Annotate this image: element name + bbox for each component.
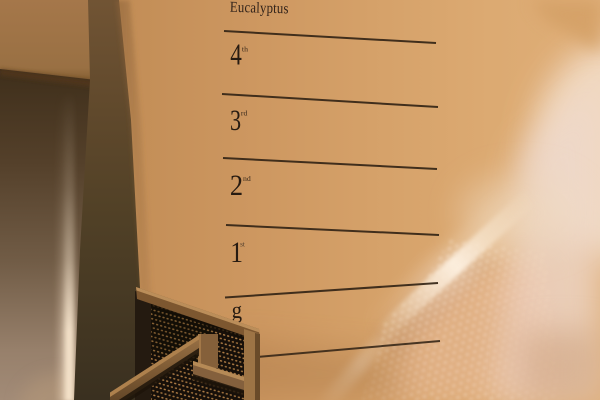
svg-text:g: g	[232, 296, 242, 323]
svg-text:Eucalyptus: Eucalyptus	[230, 0, 289, 18]
svg-text:st: st	[240, 240, 245, 248]
svg-text:3: 3	[230, 103, 241, 137]
svg-text:4: 4	[230, 37, 242, 71]
svg-text:th: th	[242, 45, 248, 54]
svg-text:rd: rd	[241, 108, 248, 117]
svg-text:nd: nd	[243, 174, 251, 183]
svg-text:2: 2	[230, 169, 243, 202]
